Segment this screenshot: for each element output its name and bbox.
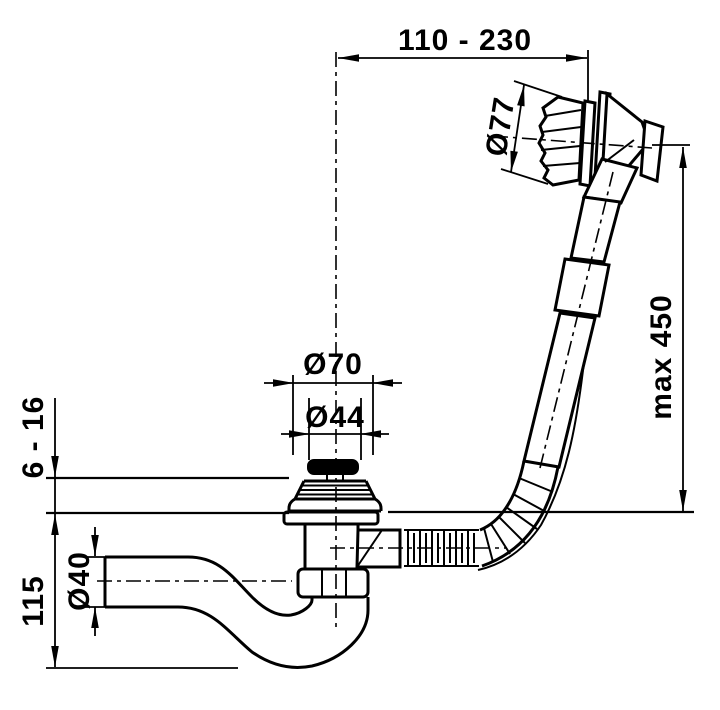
lock-nut [298,569,368,597]
dim-label-pipe-diameter: Ø40 [63,551,96,611]
plug-cap [308,460,358,474]
technical-drawing-bath-drain: 110 - 230 Ø77 max 450 Ø70 Ø44 [0,0,720,710]
drain-plug [308,460,358,481]
dim-label-offset-range: 110 - 230 [398,24,532,57]
elbow-nipple [641,121,663,181]
dim-label-hose-max-length: max 450 [645,294,678,419]
drain-flange [284,512,378,524]
dim-label-hole-diameter: Ø70 [303,348,363,381]
drain-bell-right [375,499,381,511]
drain-bell-left [289,499,295,511]
drain-thread [289,481,381,511]
corrugated-hose [404,461,558,566]
dim-label-plug-diameter: Ø44 [305,401,365,434]
drain-body [305,524,400,569]
overflow-tube [478,197,620,570]
dim-label-trap-height: 115 [17,575,50,626]
dimension-offset-range: 110 - 230 [338,24,588,102]
hose-sleeve [555,259,609,316]
dimension-hose-max-length: max 450 [645,145,690,511]
dimension-rim-thickness: 6 - 16 115 [17,396,238,668]
dim-label-rim-thickness: 6 - 16 [17,396,50,479]
